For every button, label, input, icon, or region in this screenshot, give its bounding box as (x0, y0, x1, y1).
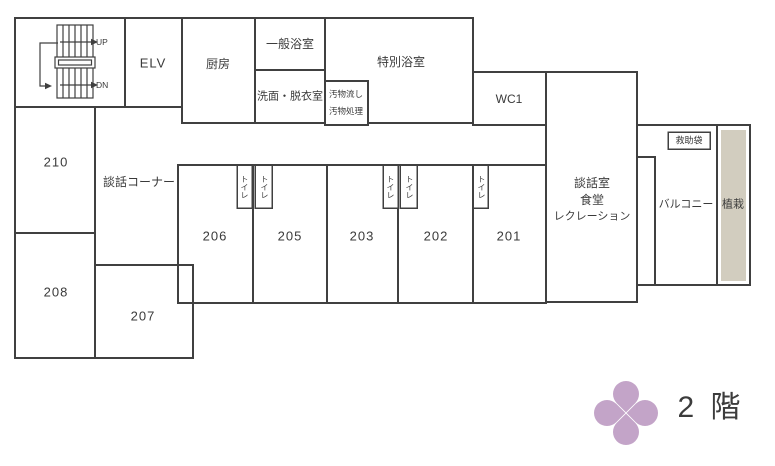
label-room-206: 206 (203, 230, 228, 243)
label-toilet-206: トイレ (240, 175, 248, 199)
label-elv: ELV (140, 57, 167, 70)
room-waste (325, 81, 368, 125)
label-lounge: 談話室 (574, 177, 610, 189)
label-toilet-203: トイレ (386, 175, 394, 199)
floor-plan: UP DN ELV 厨房 一般浴室 洗面・脱衣室 特別浴室 汚物流し 汚物処理 … (0, 0, 775, 466)
label-room-210: 210 (44, 156, 69, 169)
label-dn: DN (96, 81, 108, 90)
floor-plan-walls (0, 0, 775, 466)
label-waste-disposal: 汚物処理 (329, 107, 363, 116)
label-room-203: 203 (350, 230, 375, 243)
label-room-207: 207 (131, 310, 156, 323)
label-toilet-202: トイレ (405, 175, 413, 199)
label-washroom: 洗面・脱衣室 (257, 92, 323, 103)
label-dining: 食堂 (580, 194, 604, 206)
label-planting: 植栽 (722, 200, 744, 211)
floor-number-label: 2 階 (677, 393, 744, 423)
path-arrowhead-icon (45, 83, 52, 89)
label-wc1: WC1 (496, 93, 523, 105)
label-recreation: レクレーション (554, 212, 631, 223)
label-talk-corner: 談話コーナー (103, 176, 175, 188)
label-up: UP (96, 38, 108, 47)
wall-step (637, 157, 655, 285)
room-210 (15, 107, 95, 233)
label-toilet-201: トイレ (477, 175, 485, 199)
label-kitchen: 厨房 (206, 58, 230, 70)
label-room-201: 201 (497, 230, 522, 243)
label-balcony: バルコニー (659, 200, 714, 211)
label-room-205: 205 (278, 230, 303, 243)
label-general-bath: 一般浴室 (266, 38, 314, 50)
label-room-208: 208 (44, 286, 69, 299)
label-special-bath: 特別浴室 (377, 56, 425, 68)
label-toilet-205: トイレ (260, 175, 268, 199)
label-rescue-bag: 救助袋 (675, 137, 702, 146)
label-room-202: 202 (424, 230, 449, 243)
label-waste-sink: 汚物流し (329, 90, 363, 99)
